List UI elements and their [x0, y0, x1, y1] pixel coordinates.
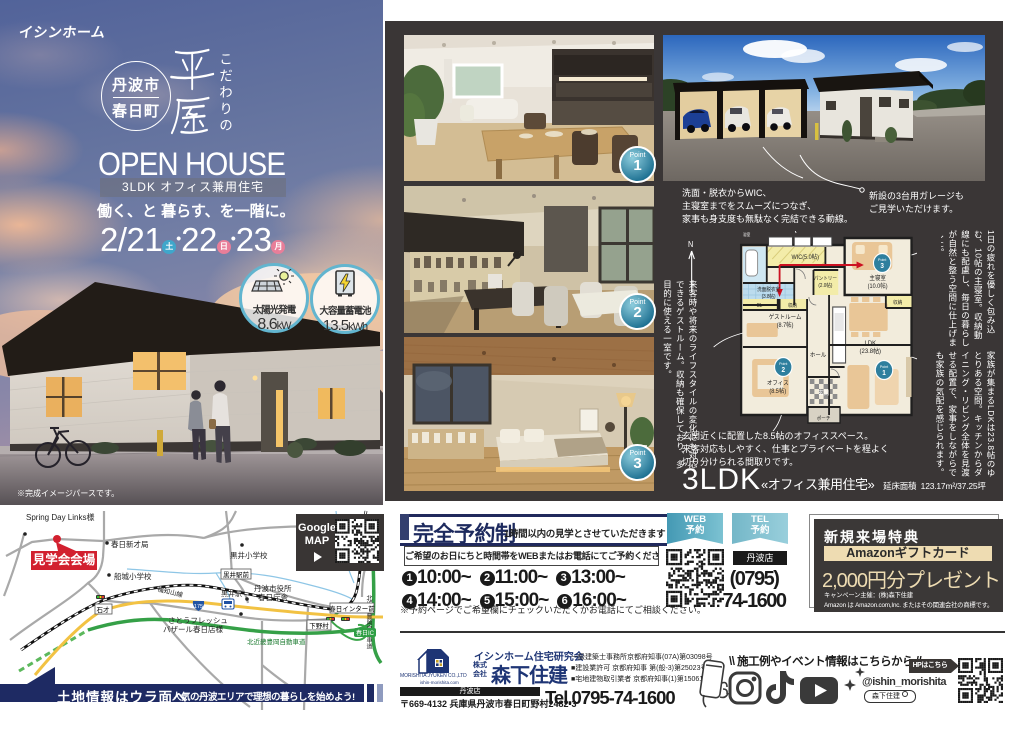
svg-text:黒井駅: 黒井駅	[221, 589, 242, 598]
svg-text:浴室: 浴室	[743, 232, 750, 237]
svg-text:春日インター前: 春日インター前	[329, 604, 375, 613]
svg-text:ポーチ: ポーチ	[817, 415, 831, 422]
svg-text:Point: Point	[779, 362, 788, 366]
svg-text:下野村: 下野村	[309, 621, 329, 630]
svg-text:1: 1	[882, 370, 886, 377]
svg-text:3: 3	[880, 263, 884, 270]
svg-text:丹波市役所: 丹波市役所	[254, 583, 292, 593]
svg-text:バザール春日店様: バザール春日店様	[163, 624, 223, 634]
svg-text:春日新才局: 春日新才局	[111, 539, 149, 549]
svg-text:(23.8帖): (23.8帖)	[860, 347, 881, 355]
svg-text:ホール: ホール	[810, 352, 827, 359]
svg-text:WIC(5.0帖): WIC(5.0帖)	[792, 253, 820, 261]
svg-text:Spring Day Links様: Spring Day Links様	[26, 512, 94, 522]
svg-text:収納: 収納	[788, 302, 797, 309]
svg-text:黒井駅前: 黒井駅前	[223, 570, 250, 579]
svg-text:N: N	[688, 240, 693, 249]
svg-text:Point: Point	[880, 365, 889, 369]
svg-text:(8.7帖): (8.7帖)	[777, 321, 794, 329]
svg-text:(10.0帖): (10.0帖)	[868, 282, 888, 290]
svg-text:ゲストルーム: ゲストルーム	[769, 313, 802, 321]
svg-text:収納: 収納	[893, 299, 902, 306]
svg-text:北近畿豊岡自動車道: 北近畿豊岡自動車道	[247, 637, 306, 646]
svg-text:Point: Point	[878, 258, 887, 262]
svg-text:CL: CL	[757, 303, 763, 309]
svg-text:LDK: LDK	[864, 340, 876, 347]
svg-text:(3.8帖): (3.8帖)	[762, 293, 776, 300]
svg-text:175: 175	[194, 604, 203, 610]
svg-text:オフィス: オフィス	[767, 380, 789, 387]
svg-text:(2.0帖): (2.0帖)	[818, 282, 832, 289]
svg-text:主寝室: 主寝室	[869, 274, 886, 282]
svg-text:洗面脱衣室: 洗面脱衣室	[757, 286, 780, 293]
svg-text:船城小学校: 船城小学校	[114, 571, 152, 581]
svg-text:黒井小学校: 黒井小学校	[230, 550, 268, 560]
svg-text:石才: 石才	[97, 605, 111, 614]
svg-text:玄関: 玄関	[818, 389, 829, 397]
svg-text:(8.5帖): (8.5帖)	[769, 387, 786, 395]
svg-text:2: 2	[781, 367, 785, 374]
svg-text:春日IC: 春日IC	[356, 629, 375, 637]
svg-text:春日庁舎: 春日庁舎	[258, 592, 288, 602]
svg-text:パントリー: パントリー	[814, 276, 837, 282]
svg-text:さとうフレッシュ: さとうフレッシュ	[168, 616, 228, 625]
